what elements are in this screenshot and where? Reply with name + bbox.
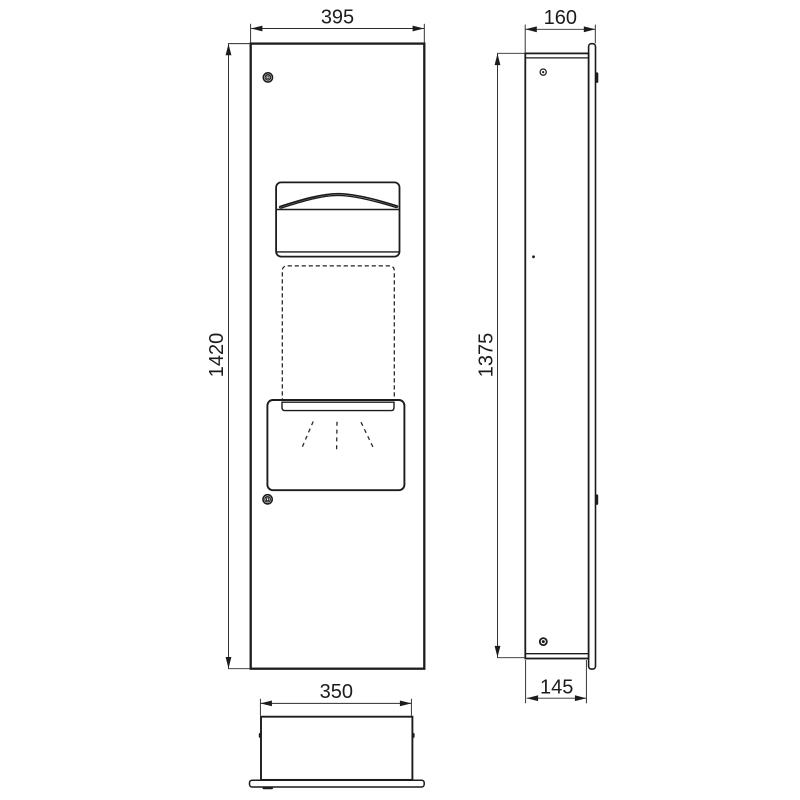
svg-text:1375: 1375	[475, 333, 497, 378]
svg-text:350: 350	[320, 681, 353, 703]
svg-text:1420: 1420	[206, 333, 228, 378]
svg-text:395: 395	[321, 6, 354, 28]
svg-text:160: 160	[544, 7, 577, 29]
svg-text:145: 145	[540, 677, 573, 699]
